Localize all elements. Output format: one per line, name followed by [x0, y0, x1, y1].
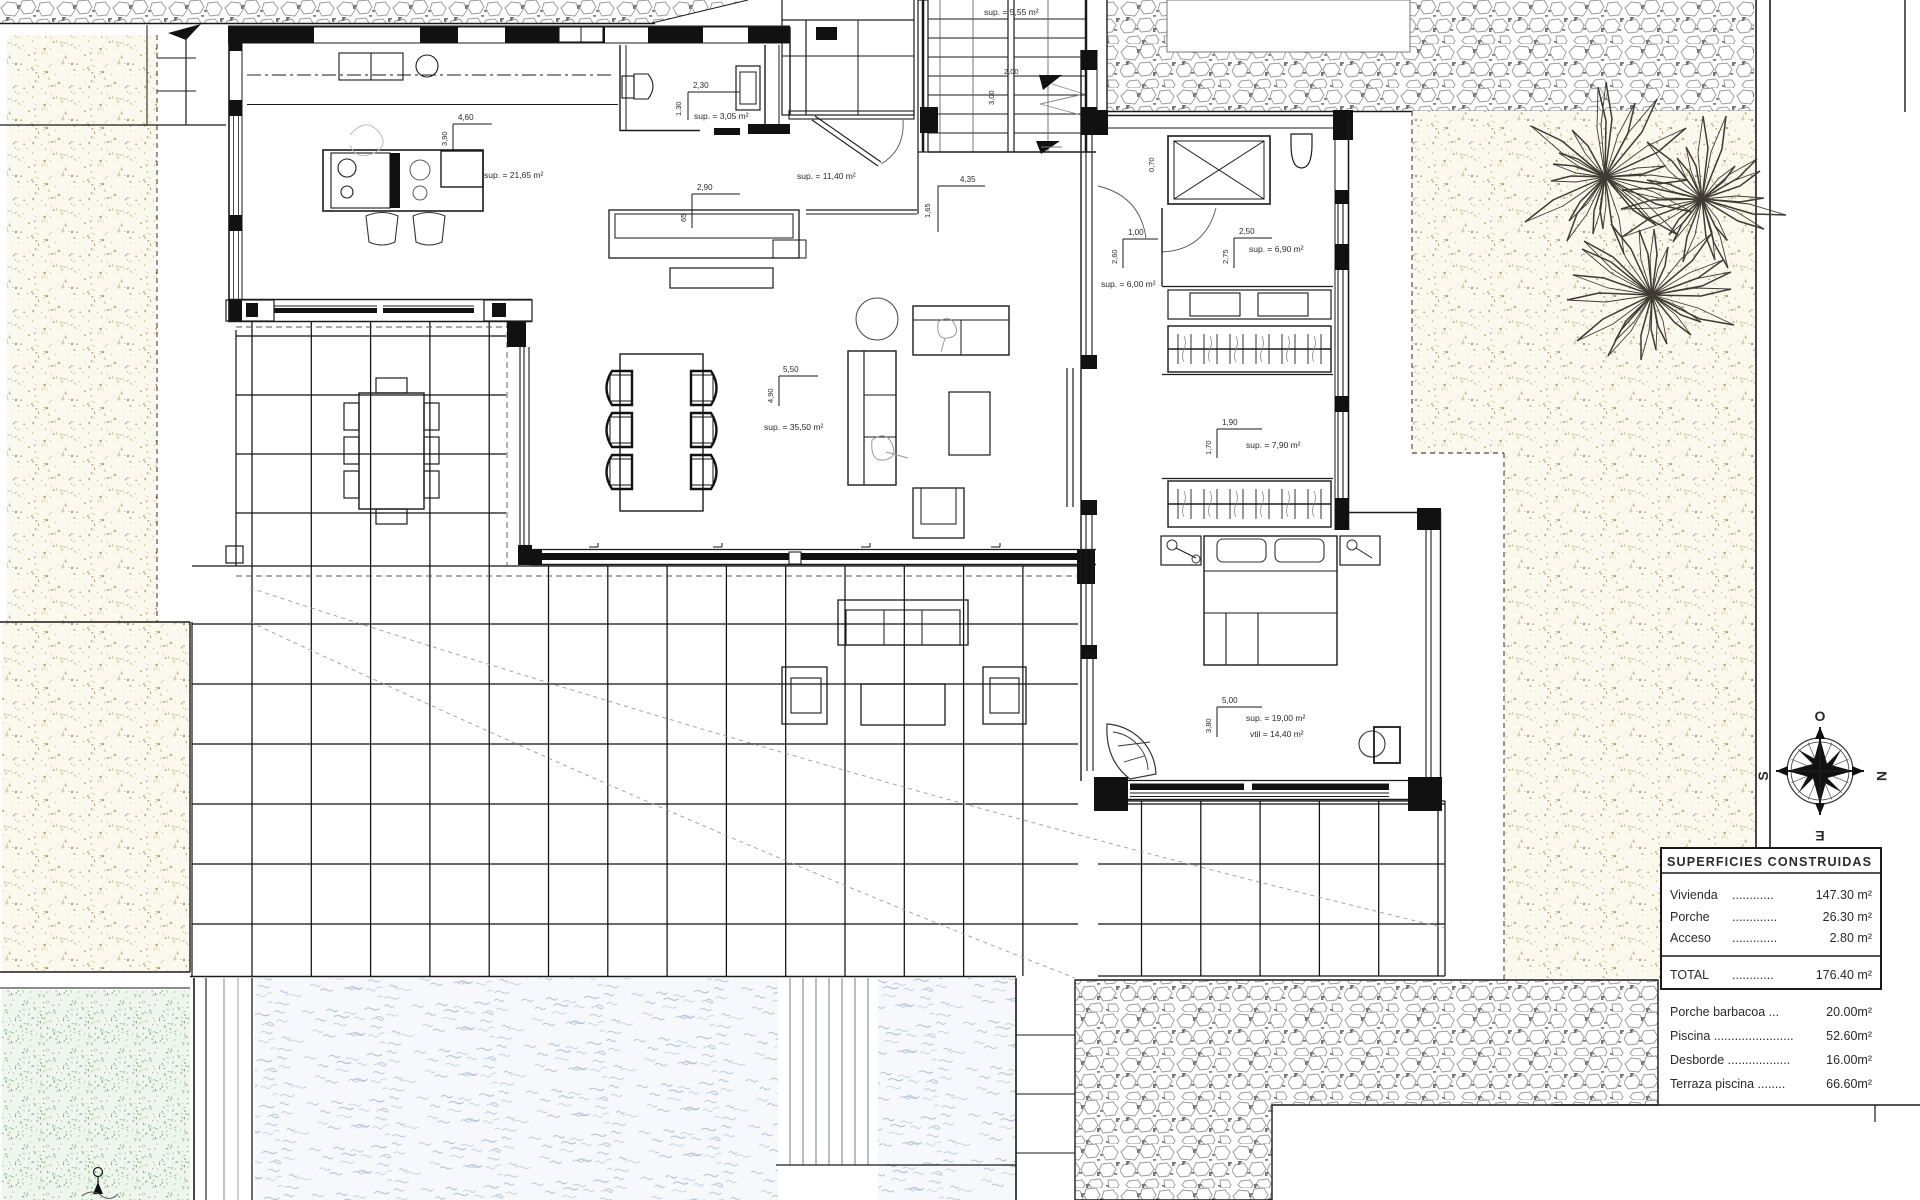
- svg-text:Porche barbacoa ...: Porche barbacoa ...: [1670, 1005, 1779, 1019]
- svg-text:sup. = 3,05 m²: sup. = 3,05 m²: [694, 111, 749, 121]
- svg-text:.............: .............: [1732, 910, 1777, 924]
- svg-text:............: ............: [1732, 968, 1774, 982]
- svg-text:2,30: 2,30: [693, 81, 709, 90]
- svg-text:vtil = 14,40 m²: vtil = 14,40 m²: [1250, 729, 1304, 739]
- svg-text:1,70: 1,70: [1204, 440, 1213, 455]
- svg-text:............: ............: [1732, 888, 1774, 902]
- svg-text:Porche: Porche: [1670, 910, 1710, 924]
- svg-text:Vivienda: Vivienda: [1670, 888, 1718, 902]
- svg-text:sup. = 7,90 m²: sup. = 7,90 m²: [1246, 440, 1301, 450]
- svg-text:4,35: 4,35: [960, 175, 976, 184]
- svg-text:66.60m²: 66.60m²: [1826, 1077, 1872, 1091]
- svg-text:sup. = 35,50 m²: sup. = 35,50 m²: [764, 422, 823, 432]
- svg-text:3,80: 3,80: [1204, 718, 1213, 733]
- svg-text:sup. = 11,40 m²: sup. = 11,40 m²: [797, 171, 856, 181]
- svg-text:1,00: 1,00: [1128, 228, 1144, 237]
- svg-text:N: N: [1874, 771, 1890, 781]
- svg-text:2,00: 2,00: [1004, 67, 1019, 76]
- svg-text:Piscina ......................: Piscina .......................: [1670, 1029, 1794, 1043]
- svg-text:2,60: 2,60: [1110, 249, 1119, 264]
- svg-text:O: O: [1815, 708, 1826, 724]
- svg-text:S: S: [1755, 771, 1771, 780]
- svg-text:sup. = 6,00 m²: sup. = 6,00 m²: [1101, 279, 1156, 289]
- svg-text:2,75: 2,75: [1221, 249, 1230, 264]
- svg-text:4,60: 4,60: [458, 113, 474, 122]
- svg-text:147.30 m²: 147.30 m²: [1816, 888, 1872, 902]
- svg-text:E: E: [1815, 828, 1824, 844]
- svg-text:2,90: 2,90: [697, 183, 713, 192]
- svg-text:16.00m²: 16.00m²: [1826, 1053, 1872, 1067]
- svg-text:52.60m²: 52.60m²: [1826, 1029, 1872, 1043]
- svg-text:Desborde ..................: Desborde ..................: [1670, 1053, 1790, 1067]
- svg-text:20.00m²: 20.00m²: [1826, 1005, 1872, 1019]
- svg-text:5,50: 5,50: [783, 365, 799, 374]
- svg-text:5,00: 5,00: [1222, 696, 1238, 705]
- svg-text:3,90: 3,90: [440, 131, 449, 146]
- svg-text:1,90: 1,90: [1222, 418, 1238, 427]
- svg-text:sup. = 19,00 m²: sup. = 19,00 m²: [1246, 713, 1305, 723]
- svg-text:0,70: 0,70: [1147, 157, 1156, 172]
- svg-text:2.80 m²: 2.80 m²: [1830, 931, 1872, 945]
- svg-text:3,00: 3,00: [987, 90, 996, 105]
- svg-text:SUPERFICIES CONSTRUIDAS: SUPERFICIES CONSTRUIDAS: [1667, 855, 1872, 869]
- svg-text:sup. = 21,65 m²: sup. = 21,65 m²: [484, 170, 543, 180]
- svg-text:TOTAL: TOTAL: [1670, 968, 1709, 982]
- svg-text:.............: .............: [1732, 931, 1777, 945]
- svg-text:2,50: 2,50: [1239, 227, 1255, 236]
- svg-text:sup. = 6,90 m²: sup. = 6,90 m²: [1249, 244, 1304, 254]
- svg-text:1,30: 1,30: [674, 101, 683, 116]
- svg-text:1,65: 1,65: [923, 203, 932, 218]
- svg-text:Terraza piscina ........: Terraza piscina ........: [1670, 1077, 1785, 1091]
- svg-text:176.40 m²: 176.40 m²: [1816, 968, 1872, 982]
- svg-text:26.30 m²: 26.30 m²: [1823, 910, 1872, 924]
- svg-text:Acceso: Acceso: [1670, 931, 1711, 945]
- svg-text:sup. = 5,55 m²: sup. = 5,55 m²: [984, 7, 1039, 17]
- svg-text:4,90: 4,90: [766, 388, 775, 403]
- svg-text:65: 65: [679, 214, 688, 222]
